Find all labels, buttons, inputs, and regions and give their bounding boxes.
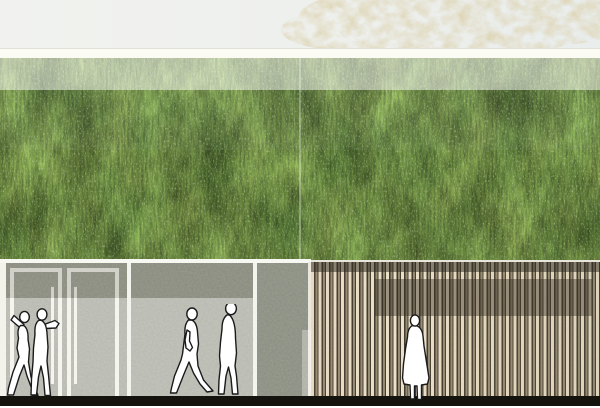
figures-entrance-pair xyxy=(4,304,62,400)
slat-top-reveal xyxy=(311,262,600,272)
figures-walking-pair xyxy=(168,304,252,398)
figure-silhouette xyxy=(31,309,59,396)
ground-floor-top-line xyxy=(0,259,311,263)
parapet-band xyxy=(0,48,600,58)
slat-window-band xyxy=(375,279,592,316)
elevation-rendering xyxy=(0,0,600,408)
green-wall xyxy=(0,58,600,262)
figure-standing xyxy=(397,314,435,402)
tree-sketch xyxy=(258,0,600,54)
wall-joint-line xyxy=(253,262,257,396)
figure-silhouette xyxy=(403,315,430,400)
figure-silhouette xyxy=(219,304,239,394)
pilaster-highlight xyxy=(302,330,311,396)
wall-joint-line xyxy=(127,262,131,396)
tree-canopy xyxy=(281,0,600,54)
green-wall-panel-seam xyxy=(299,58,301,262)
figure-silhouette xyxy=(171,308,214,393)
ground-line xyxy=(0,396,600,406)
